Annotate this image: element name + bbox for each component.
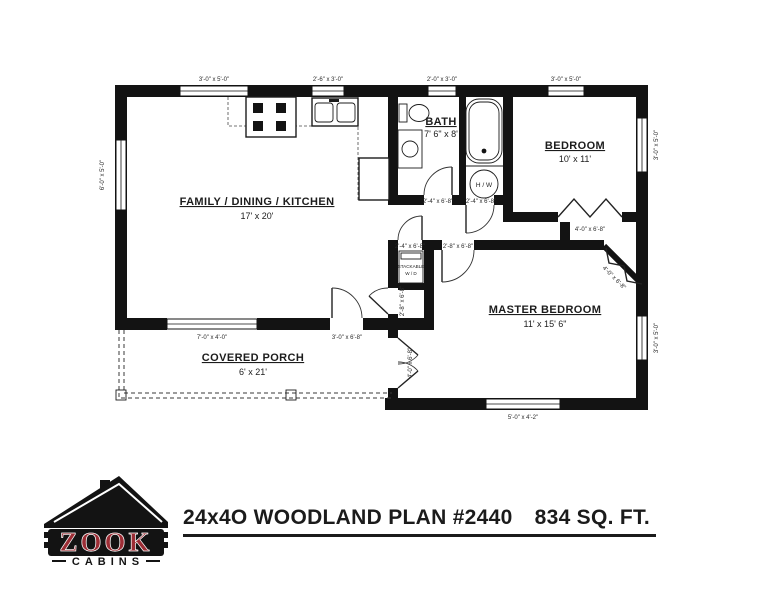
window-size-master-right: 3'-0" x 5'-0" [654,323,660,353]
window-family-left [116,140,126,210]
window-master-right [637,316,647,360]
window-size-bath-top: 2'-0" x 3'-0" [427,77,457,83]
room-label-bedroom: BEDROOM [545,140,605,152]
door-size-bedroom-closet: 4'-0" x 6'-8" [575,227,605,233]
door-size-porch-entry: 3'-0" x 6'-8" [332,335,362,341]
refrigerator [359,158,389,200]
door-size-master-patio: 4'-0" x 6'-8" [408,348,414,378]
window-size-kitchen-top: 2'-6" x 3'-0" [313,77,343,83]
room-label-family: FAMILY / DINING / KITCHEN [180,196,335,208]
room-dims-porch: 6' x 21' [239,367,267,377]
window-bedroom-right [637,118,647,172]
washer-dryer: STACKABLE W / D [398,251,425,283]
plan-title: 24x4O WOODLAND PLAN #2440 834 SQ. FT. [183,506,656,537]
zook-cabins-logo: ZOOK CABINS [44,472,168,566]
door-size-bath: 2'-4" x 6'-8" [423,199,453,205]
window-family-top [180,86,248,96]
floor-plan-sheet: H / W STACKABLE W / D FAMILY / DINING / … [0,0,768,593]
logo-body: ZOOK [44,527,168,557]
window-bedroom-top [548,86,584,96]
kitchen-fixtures [228,97,389,200]
window-size-bedroom-top: 3'-0" x 5'-0" [551,77,581,83]
door-size-family-closet: 2'-8" x 6'-8" [400,286,406,316]
door-bath [424,167,452,195]
logo-sub-text: CABINS [72,556,144,566]
room-dims-family: 17' x 20' [241,211,274,221]
kitchen-sink [312,98,358,126]
svg-text:STACKABLE: STACKABLE [398,264,425,269]
room-label-porch: COVERED PORCH [202,352,304,364]
window-bath-top [428,86,456,96]
door-bedroom-closet-bifold [558,199,622,217]
floor-plan-drawing: H / W STACKABLE W / D FAMILY / DINING / … [0,0,768,478]
door-size-master-closet: 4'-0" x 6'-8" [601,265,627,291]
stove [246,97,296,137]
logo-cabins-row: CABINS [52,556,160,566]
window-porch [167,319,257,329]
svg-text:H / W: H / W [476,182,493,189]
logo-brand-text: ZOOK [59,527,152,557]
plan-title-name: 24x4O WOODLAND PLAN #2440 [183,506,513,530]
window-kitchen-top [312,86,344,96]
door-master-entry [442,250,474,282]
window-size-bedroom-right: 3'-0" x 5'-0" [654,130,660,160]
door-size-laundry: 2'-4" x 6'-8" [395,244,425,250]
room-dims-master: 11' x 15' 6" [524,319,567,329]
room-dims-bedroom: 10' x 11' [559,154,592,164]
walls [115,85,648,410]
window-size-family-left: 6'-0" x 5'-0" [100,160,106,190]
plan-title-sqft: 834 SQ. FT. [535,506,650,530]
door-family-closet [369,288,388,314]
window-size-family-top: 3'-0" x 5'-0" [199,77,229,83]
room-dims-bath: 7' 6" x 8' [424,129,458,139]
cabin-roof-icon [44,476,168,528]
room-label-master: MASTER BEDROOM [489,304,602,316]
window-master-bottom [486,399,560,409]
door-size-master-entry: 2'-8" x 6'-8" [443,244,473,250]
door-laundry [398,216,422,240]
door-size-water-heater: 2'-4" x 6'-8" [466,199,496,205]
bathtub [466,99,502,163]
window-size-porch: 7'-0" x 4'-0" [197,335,227,341]
svg-text:W / D: W / D [405,271,417,276]
bathroom-sink [398,130,422,168]
water-heater: H / W [470,170,498,198]
door-porch-entry [332,288,362,318]
window-size-master-bottom: 5'-0" x 4'-2" [508,415,538,421]
room-label-bath: BATH [425,116,456,128]
door-water-heater [466,205,494,233]
